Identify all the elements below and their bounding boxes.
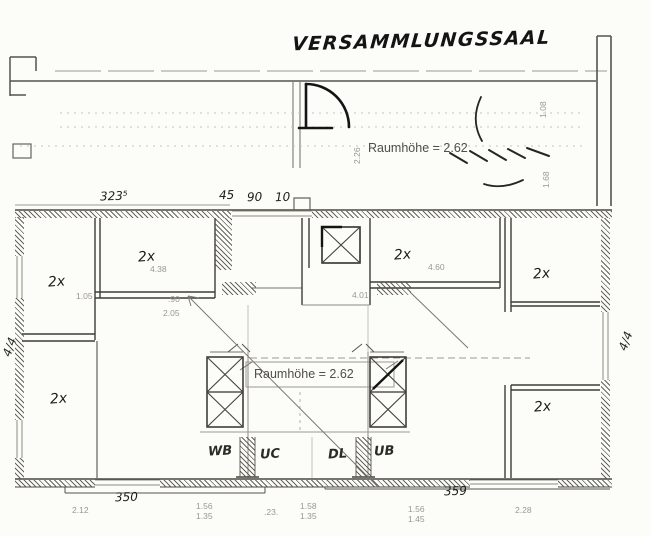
wall-hatch [240, 437, 255, 477]
room-label-left-upper: 2x [47, 273, 65, 290]
center-room-height-label: Raumhöhe = 2.62 [254, 367, 354, 381]
wall-hatch [215, 218, 232, 270]
dim-4-38: 4.38 [150, 264, 167, 274]
room-label-col3: 2x [393, 246, 411, 263]
dim-2-05: 2.05 [163, 308, 180, 318]
bottom-print-1-45: 1.45 [408, 514, 425, 524]
corridor-label-wb: WB [208, 443, 233, 459]
shaft-box-top [322, 227, 360, 263]
door-swing-icon [299, 84, 349, 128]
wall-hatch [222, 282, 256, 295]
bottom-print-1-35: 1.35 [196, 511, 213, 521]
corridor-label-dl: DL [328, 447, 348, 463]
stair-dim-bottom: 1.68 [541, 171, 551, 188]
plan-linework [0, 0, 650, 536]
stair-dim-top: 1.08 [538, 101, 548, 118]
top-dim-45: 45 [219, 188, 235, 203]
bottom-dim-350: 350 [115, 490, 138, 505]
wall-hatch [377, 282, 411, 295]
wall-hatch [160, 480, 470, 487]
wall-hatch [15, 298, 24, 420]
top-dim-90: 90 [247, 190, 263, 205]
upper-side-dim: 2.26 [352, 147, 362, 164]
bottom-print-2-28: 2.28 [515, 505, 532, 515]
floor-plan: VERSAMMLUNGSSAAL Raumhöhe = 2.62 2.26 1.… [0, 0, 650, 536]
dim-0-90: .90 [168, 294, 180, 304]
upper-room-height-label: Raumhöhe = 2.62 [368, 141, 468, 155]
dim-4-60: 4.60 [428, 262, 445, 272]
bottom-print-1-56: 1.56 [196, 501, 213, 511]
top-dim-10: 10 [275, 190, 291, 205]
wall-hatch [15, 211, 231, 218]
bottom-print-1-56b: 1.56 [408, 504, 425, 514]
corridor-label-ub: UB [374, 443, 395, 459]
bottom-print-1-35b: 1.35 [300, 511, 317, 521]
room-label-right-upper: 2x [532, 265, 550, 282]
hall-dashed-lines [20, 113, 583, 146]
wall-hatch [15, 217, 24, 256]
dim-4-01: 4.01 [352, 290, 369, 300]
wall-hatch [558, 480, 612, 487]
bottom-print-2-12: 2.12 [72, 505, 89, 515]
wall-hatch [312, 211, 612, 218]
corridor-label-uc: UC [260, 446, 281, 462]
bottom-print-23: .23. [264, 507, 278, 517]
shaft-box-left [207, 357, 243, 427]
dim-1-05: 1.05 [76, 291, 93, 301]
room-label-col2: 2x [137, 248, 155, 265]
interior-walls [22, 218, 600, 478]
wall-hatch [356, 437, 371, 477]
top-dim-323-5: 323⁵ [100, 189, 128, 204]
corridor-stubs [236, 437, 375, 478]
wall-hatch [15, 458, 24, 479]
wall-hatch [601, 380, 610, 479]
wall-hatch [15, 480, 95, 487]
room-label-left-lower: 2x [49, 390, 67, 407]
bottom-print-1-58: 1.58 [300, 501, 317, 511]
bottom-dim-359: 359 [444, 484, 467, 499]
wall-hatch [601, 218, 610, 312]
room-label-right-lower: 2x [533, 398, 551, 415]
